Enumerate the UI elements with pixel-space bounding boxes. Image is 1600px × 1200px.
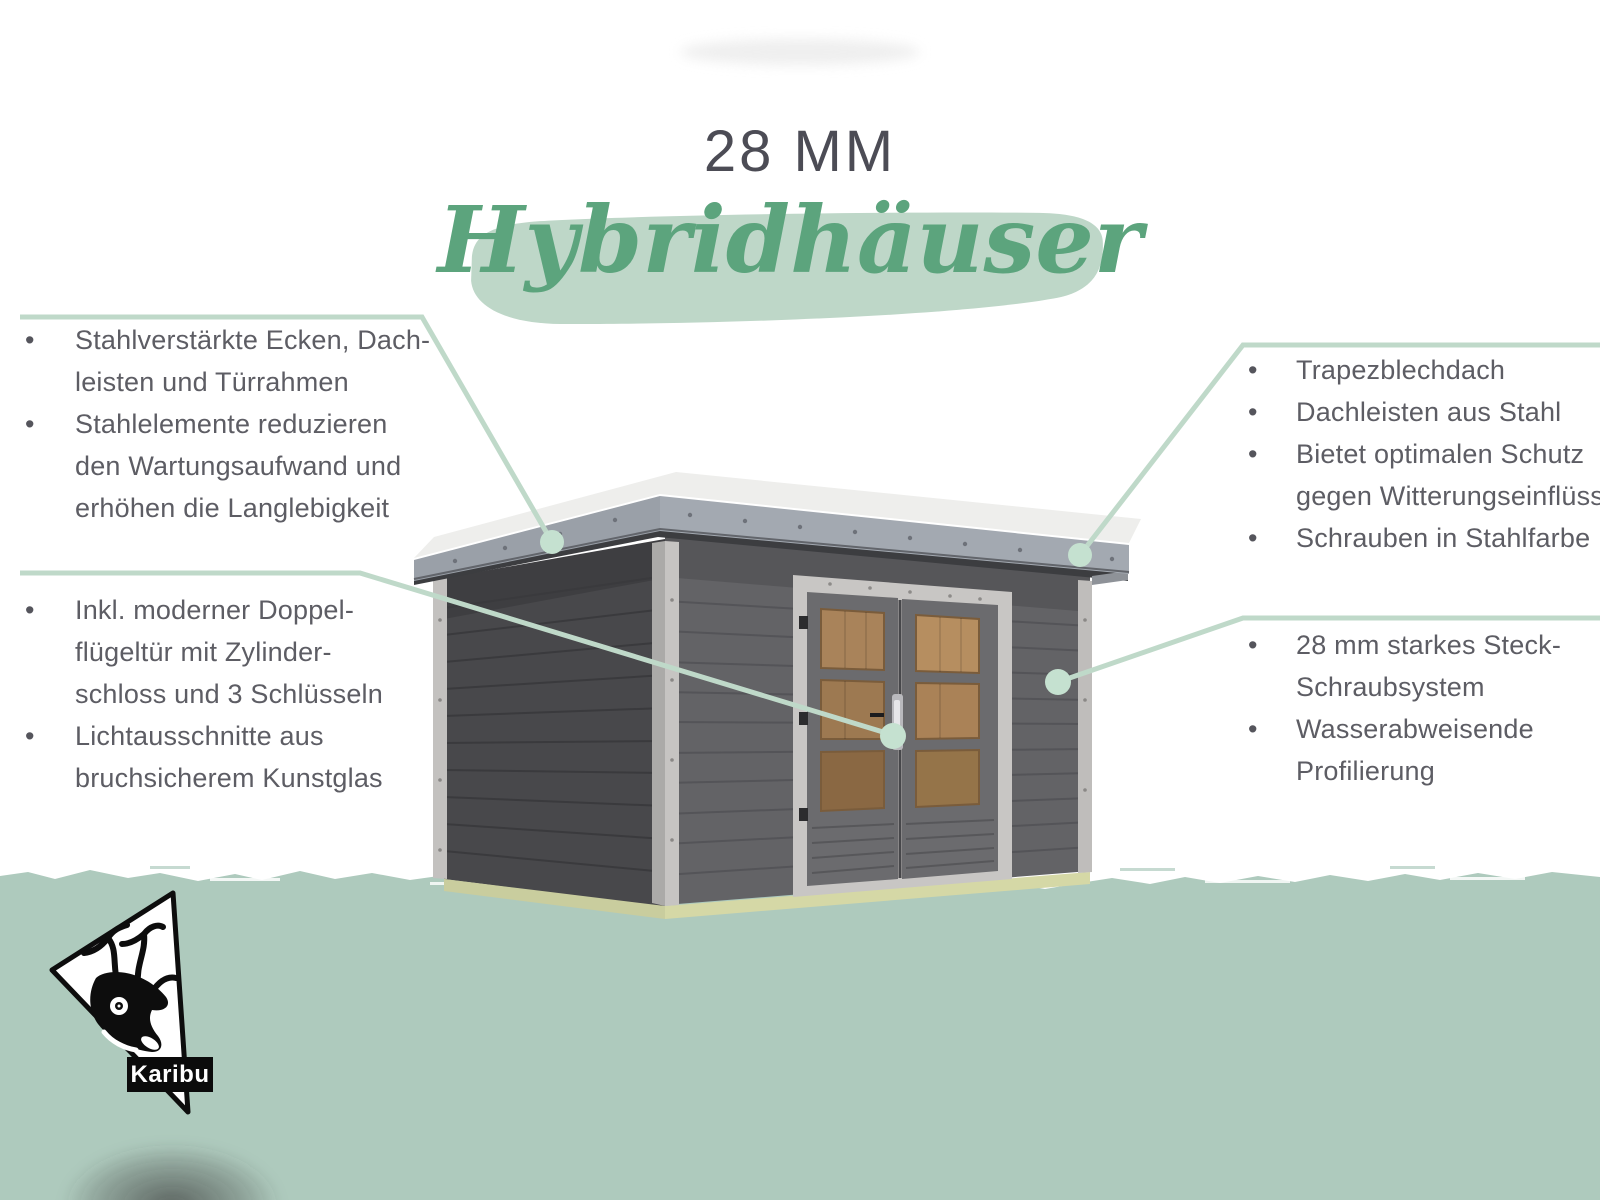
bullet-marker: • bbox=[20, 403, 75, 445]
dot-door-handle bbox=[880, 723, 906, 749]
dot-roof-right bbox=[1068, 543, 1092, 567]
bullet-marker bbox=[20, 445, 75, 487]
feature-text: Stahlelemente reduzieren bbox=[75, 403, 388, 445]
bullet-marker: • bbox=[1238, 349, 1296, 391]
feature-list-roof: •Trapezblechdach •Dachleisten aus Stahl … bbox=[1238, 349, 1600, 559]
feature-list-walls: •28 mm starkes Steck- Schraubsystem •Was… bbox=[1238, 624, 1600, 792]
feature-line: •Inkl. moderner Doppel- bbox=[20, 589, 480, 631]
feature-text: bruchsicherem Kunstglas bbox=[75, 757, 383, 799]
feature-text: gegen Witterungseinflüsse bbox=[1296, 475, 1600, 517]
feature-line: •Schrauben in Stahlfarbe bbox=[1238, 517, 1600, 559]
bullet-marker bbox=[1238, 475, 1296, 517]
feature-text: flügeltür mit Zylinder- bbox=[75, 631, 332, 673]
feature-line: schloss und 3 Schlüsseln bbox=[20, 673, 480, 715]
feature-text: Schrauben in Stahlfarbe bbox=[1296, 517, 1590, 559]
feature-text: Trapezblechdach bbox=[1296, 349, 1505, 391]
feature-line: Schraubsystem bbox=[1238, 666, 1600, 708]
feature-text: Dachleisten aus Stahl bbox=[1296, 391, 1561, 433]
feature-line: •28 mm starkes Steck- bbox=[1238, 624, 1600, 666]
feature-list-door: •Inkl. moderner Doppel- flügeltür mit Zy… bbox=[20, 589, 480, 799]
bullet-marker: • bbox=[20, 319, 75, 361]
feature-line: •Wasserabweisende bbox=[1238, 708, 1600, 750]
title-family-script: Hybridhäuser bbox=[420, 186, 1160, 294]
dot-wall-right bbox=[1045, 669, 1071, 695]
bullet-marker bbox=[20, 631, 75, 673]
ground bbox=[0, 866, 1600, 1200]
feature-line: Profilierung bbox=[1238, 750, 1600, 792]
bullet-marker bbox=[1238, 666, 1296, 708]
feature-line: •Trapezblechdach bbox=[1238, 349, 1600, 391]
feature-line: •Stahlelemente reduzieren bbox=[20, 403, 480, 445]
feature-text: Wasserabweisende bbox=[1296, 708, 1534, 750]
feature-text: leisten und Türrahmen bbox=[75, 361, 349, 403]
feature-line: den Wartungsaufwand und bbox=[20, 445, 480, 487]
feature-line: •Stahlverstärkte Ecken, Dach- bbox=[20, 319, 480, 361]
shed-illustration bbox=[414, 472, 1141, 919]
bullet-marker: • bbox=[1238, 624, 1296, 666]
feature-text: Profilierung bbox=[1296, 750, 1435, 792]
karibu-brand-label: Karibu bbox=[127, 1057, 213, 1092]
feature-text: den Wartungsaufwand und bbox=[75, 445, 401, 487]
feature-text: Bietet optimalen Schutz bbox=[1296, 433, 1584, 475]
background-smudge bbox=[680, 39, 920, 65]
infographic-page: 28 MM Hybridhäuser •Stahlverstärkte Ecke… bbox=[0, 0, 1600, 1200]
bullet-marker bbox=[20, 361, 75, 403]
bullet-marker bbox=[20, 757, 75, 799]
feature-line: •Dachleisten aus Stahl bbox=[1238, 391, 1600, 433]
bullet-marker: • bbox=[20, 715, 75, 757]
dot-roof-left bbox=[540, 530, 564, 554]
bullet-marker: • bbox=[1238, 517, 1296, 559]
feature-list-steel: •Stahlverstärkte Ecken, Dach- leisten un… bbox=[20, 319, 480, 529]
feature-text: schloss und 3 Schlüsseln bbox=[75, 673, 383, 715]
bullet-marker bbox=[1238, 750, 1296, 792]
feature-line: flügeltür mit Zylinder- bbox=[20, 631, 480, 673]
feature-text: Lichtausschnitte aus bbox=[75, 715, 324, 757]
bullet-marker: • bbox=[1238, 391, 1296, 433]
feature-line: bruchsicherem Kunstglas bbox=[20, 757, 480, 799]
bullet-marker: • bbox=[1238, 433, 1296, 475]
feature-line: •Bietet optimalen Schutz bbox=[1238, 433, 1600, 475]
bullet-marker bbox=[20, 673, 75, 715]
feature-line: gegen Witterungseinflüsse bbox=[1238, 475, 1600, 517]
feature-line: erhöhen die Langlebigkeit bbox=[20, 487, 480, 529]
feature-text: Stahlverstärkte Ecken, Dach- bbox=[75, 319, 430, 361]
bullet-marker: • bbox=[1238, 708, 1296, 750]
feature-text: 28 mm starkes Steck- bbox=[1296, 624, 1561, 666]
title-thickness: 28 MM bbox=[600, 118, 1000, 185]
feature-text: erhöhen die Langlebigkeit bbox=[75, 487, 389, 529]
feature-text: Inkl. moderner Doppel- bbox=[75, 589, 354, 631]
bullet-marker bbox=[20, 487, 75, 529]
feature-line: leisten und Türrahmen bbox=[20, 361, 480, 403]
feature-text: Schraubsystem bbox=[1296, 666, 1485, 708]
bullet-marker: • bbox=[20, 589, 75, 631]
feature-line: •Lichtausschnitte aus bbox=[20, 715, 480, 757]
